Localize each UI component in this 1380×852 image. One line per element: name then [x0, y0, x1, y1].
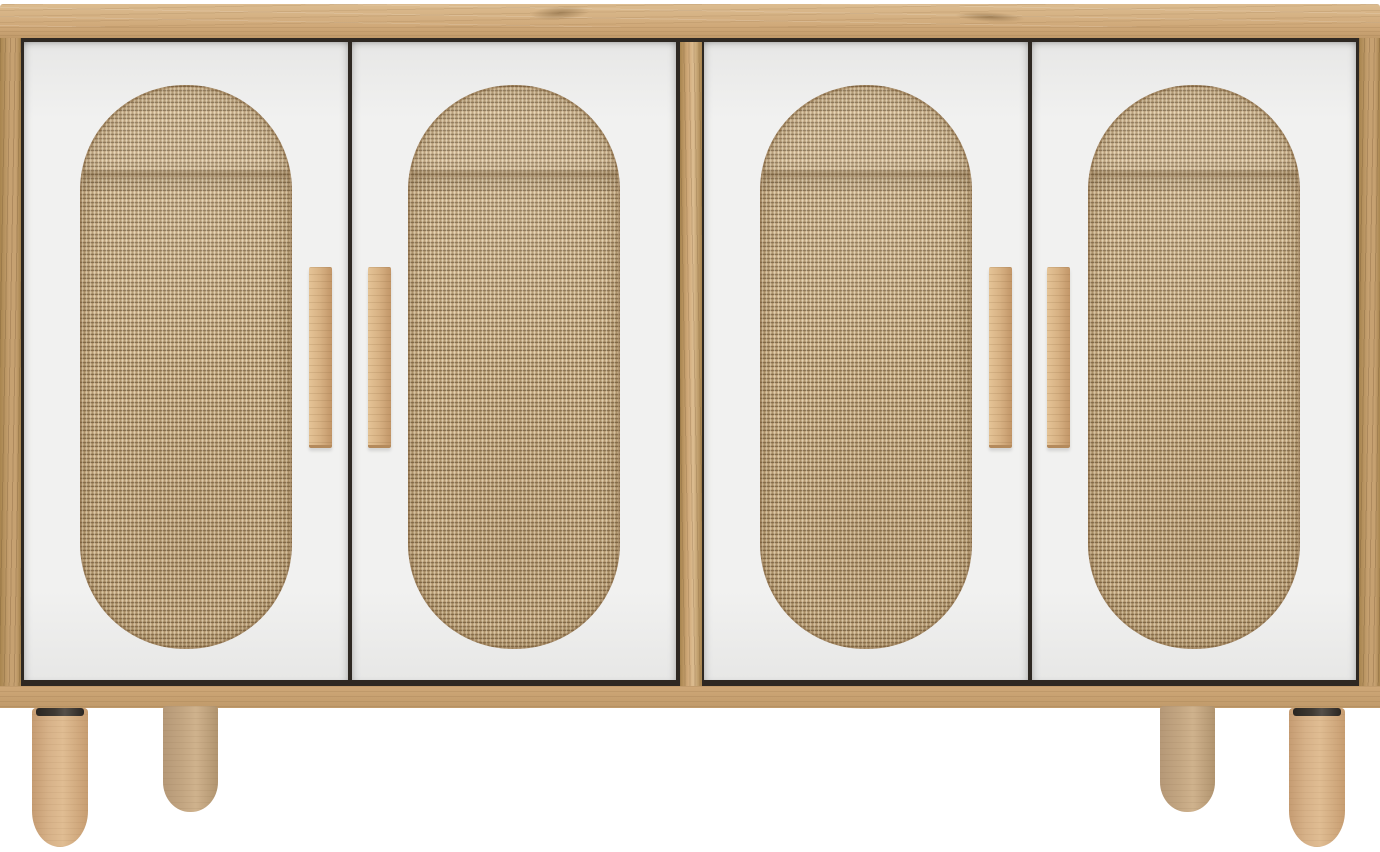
back-left-leg [163, 706, 218, 812]
top-board-surface [0, 4, 1380, 27]
door-4-rattan-oval-panel [1088, 85, 1300, 649]
door-1-rattan-oval-panel [80, 85, 292, 649]
front-left-leg-mount-ring [36, 708, 84, 716]
door-3 [704, 42, 1028, 680]
front-right-leg-mount-ring [1293, 708, 1341, 716]
front-left-leg [32, 708, 88, 847]
door-2 [352, 42, 676, 680]
door-4-handle [1047, 267, 1070, 448]
cabinet-top-board [0, 4, 1380, 38]
back-right-leg [1160, 706, 1215, 812]
door-2-rattan-oval-panel [408, 85, 620, 649]
right-side-panel [1359, 38, 1380, 708]
left-side-panel [0, 38, 21, 708]
product-photo-canvas [0, 0, 1380, 852]
door-1-handle [309, 267, 332, 448]
door-2-handle [368, 267, 391, 448]
bottom-rail [0, 686, 1380, 708]
door-4 [1032, 42, 1356, 680]
door-1 [24, 42, 348, 680]
top-board-front-edge [0, 27, 1380, 38]
front-right-leg [1289, 708, 1345, 847]
door-3-rattan-oval-panel [760, 85, 972, 649]
cabinet-body [0, 38, 1380, 708]
door-3-handle [989, 267, 1012, 448]
center-divider-panel [680, 42, 702, 708]
